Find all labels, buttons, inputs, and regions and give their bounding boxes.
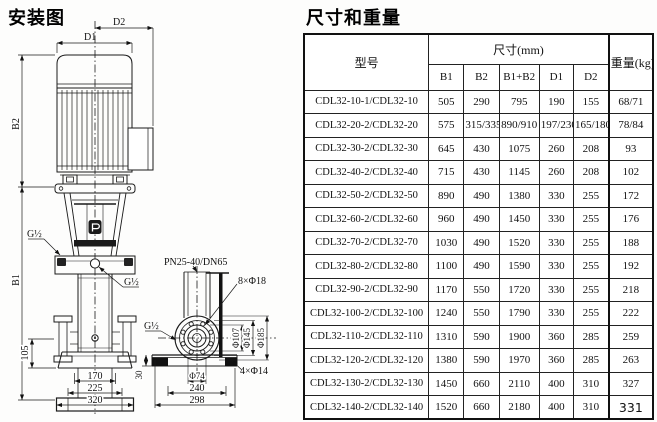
d2-cell: 310 — [573, 372, 608, 396]
col-header-b2: B2 — [464, 64, 499, 90]
wt-cell: 93 — [609, 137, 653, 161]
d2-cell: 255 — [573, 208, 608, 232]
d1-cell: 330 — [539, 255, 573, 279]
dim-320-label: 320 — [88, 395, 103, 406]
dim-d1-label: D1 — [84, 32, 96, 43]
model-cell: CDL32-80-2/CDL32-80 — [304, 255, 429, 279]
d2-cell: 208 — [573, 161, 608, 185]
col-header-model: 型号 — [304, 34, 429, 90]
wt-cell: 102 — [609, 161, 653, 185]
b1b2-cell: 1590 — [499, 255, 539, 279]
dim-170-label: 170 — [88, 371, 103, 382]
d2-cell: 255 — [573, 255, 608, 279]
d2-cell: 165/180 — [573, 114, 608, 138]
front-view-dimensions — [18, 28, 153, 405]
d1-cell: 330 — [539, 302, 573, 326]
model-cell: CDL32-10-1/CDL32-10 — [304, 90, 429, 114]
b1b2-cell: 795 — [499, 90, 539, 114]
catalog-page: 安装图 尺寸和重量 — [0, 0, 657, 422]
table-row: CDL32-110-2/CDL32-1101310590190036028525… — [304, 325, 653, 349]
table-row: CDL32-40-2/CDL32-407154301145260208102 — [304, 161, 653, 185]
pump-front-view — [54, 21, 153, 414]
d1-cell: 330 — [539, 278, 573, 302]
d2-cell: 255 — [573, 302, 608, 326]
dia-185-label: Φ185 — [256, 327, 266, 348]
flange-spec-label: PN25-40/DN65 — [164, 257, 227, 268]
d1-cell: 330 — [539, 208, 573, 232]
table-row: CDL32-130-2/CDL32-1301450660211040031032… — [304, 372, 653, 396]
dim-b1-label: B1 — [11, 274, 22, 286]
b1b2-cell: 1450 — [499, 208, 539, 232]
port-g12-center-label: G½ — [124, 277, 139, 288]
model-cell: CDL32-120-2/CDL32-120 — [304, 349, 429, 373]
model-cell: CDL32-40-2/CDL32-40 — [304, 161, 429, 185]
table-row: CDL32-10-1/CDL32-1050529079519015568/71 — [304, 90, 653, 114]
model-cell: CDL32-90-2/CDL32-90 — [304, 278, 429, 302]
col-header-size-mm: 尺寸(mm) — [429, 34, 609, 64]
pump-installation-drawing: D2 D1 B2 B1 G½ G½ G½ 105 170 225 320 PN2… — [0, 0, 310, 422]
dimensions-weight-table: 型号 尺寸(mm) 重量(kg) B1 B2 B1+B2 D1 D2 CDL32… — [303, 33, 654, 420]
table-row: CDL32-60-2/CDL32-609604901450330255176 — [304, 208, 653, 232]
model-cell: CDL32-130-2/CDL32-130 — [304, 372, 429, 396]
col-header-weight-kg: 重量(kg) — [609, 34, 653, 90]
b2-cell: 290 — [464, 90, 499, 114]
b1-cell: 1100 — [429, 255, 464, 279]
dim-d2-label: D2 — [113, 17, 125, 28]
b1b2-cell: 1720 — [499, 278, 539, 302]
b1-cell: 1170 — [429, 278, 464, 302]
bolt-holes-4-label: 4×Φ14 — [240, 366, 268, 377]
port-g12-side-label: G½ — [144, 321, 159, 332]
d2-cell: 285 — [573, 349, 608, 373]
d2-cell: 255 — [573, 184, 608, 208]
b1-cell: 890 — [429, 184, 464, 208]
dia-107-label: Φ107 — [231, 327, 241, 348]
d1-cell: 400 — [539, 372, 573, 396]
wt-cell: 172 — [609, 184, 653, 208]
b2-cell: 550 — [464, 302, 499, 326]
b1b2-cell: 890/910 — [499, 114, 539, 138]
table-row: CDL32-20-2/CDL32-20575315/335890/910197/… — [304, 114, 653, 138]
dim-105-label: 105 — [20, 346, 31, 361]
d1-cell: 190 — [539, 90, 573, 114]
d1-cell: 260 — [539, 161, 573, 185]
col-header-b1b2: B1+B2 — [499, 64, 539, 90]
col-header-d1: D1 — [539, 64, 573, 90]
dim-298-label: 298 — [190, 395, 205, 406]
model-cell: CDL32-100-2/CDL32-100 — [304, 302, 429, 326]
b1b2-cell: 1900 — [499, 325, 539, 349]
wt-cell: 78/84 — [609, 114, 653, 138]
d2-cell: 285 — [573, 325, 608, 349]
col-header-d2: D2 — [573, 64, 608, 90]
drawing-labels: D2 D1 B2 B1 G½ G½ G½ 105 170 225 320 PN2… — [11, 17, 268, 406]
wt-cell: 188 — [609, 231, 653, 255]
b1b2-cell: 1970 — [499, 349, 539, 373]
table-row: CDL32-80-2/CDL32-8011004901590330255192 — [304, 255, 653, 279]
d1-cell: 330 — [539, 184, 573, 208]
b2-cell: 660 — [464, 396, 499, 420]
wt-cell: 218 — [609, 278, 653, 302]
d2-cell: 155 — [573, 90, 608, 114]
dia-74-label: Φ74 — [189, 371, 205, 381]
d1-cell: 360 — [539, 325, 573, 349]
dim-b2-label: B2 — [11, 118, 22, 130]
b1b2-cell: 1380 — [499, 184, 539, 208]
wt-cell: 259 — [609, 325, 653, 349]
b1b2-cell: 1520 — [499, 231, 539, 255]
b1-cell: 1380 — [429, 349, 464, 373]
b1-cell: 1240 — [429, 302, 464, 326]
b1b2-cell: 2180 — [499, 396, 539, 420]
wt-cell: 263 — [609, 349, 653, 373]
bolt-circle-8-label: 8×Φ18 — [238, 276, 266, 287]
b2-cell: 590 — [464, 349, 499, 373]
table-row: CDL32-120-2/CDL32-1201380590197036028526… — [304, 349, 653, 373]
d2-cell: 208 — [573, 137, 608, 161]
b2-cell: 590 — [464, 325, 499, 349]
d1-cell: 360 — [539, 349, 573, 373]
b2-cell: 315/335 — [464, 114, 499, 138]
dim-225-label: 225 — [88, 383, 103, 394]
d2-cell: 310 — [573, 396, 608, 420]
wt-cell: 222 — [609, 302, 653, 326]
dimensions-weight-title: 尺寸和重量 — [306, 4, 401, 30]
b1-cell: 645 — [429, 137, 464, 161]
b2-cell: 490 — [464, 255, 499, 279]
b1-cell: 1030 — [429, 231, 464, 255]
model-cell: CDL32-20-2/CDL32-20 — [304, 114, 429, 138]
wt-cell: 331 — [609, 396, 653, 420]
table-row: CDL32-30-2/CDL32-30645430107526020893 — [304, 137, 653, 161]
brand-mark — [89, 220, 102, 234]
d1-cell: 260 — [539, 137, 573, 161]
wt-cell: 68/71 — [609, 90, 653, 114]
wt-cell: 176 — [609, 208, 653, 232]
b1b2-cell: 1075 — [499, 137, 539, 161]
table-row: CDL32-90-2/CDL32-9011705501720330255218 — [304, 278, 653, 302]
b2-cell: 490 — [464, 208, 499, 232]
dia-145-label: Φ145 — [242, 327, 252, 348]
d1-cell: 197/230 — [539, 114, 573, 138]
d2-cell: 255 — [573, 231, 608, 255]
wt-cell: 327 — [609, 372, 653, 396]
d1-cell: 400 — [539, 396, 573, 420]
wt-cell: 192 — [609, 255, 653, 279]
b1-cell: 1310 — [429, 325, 464, 349]
col-header-b1: B1 — [429, 64, 464, 90]
b1-cell: 960 — [429, 208, 464, 232]
table-row: CDL32-50-2/CDL32-508904901380330255172 — [304, 184, 653, 208]
port-g12-fill-label: G½ — [27, 229, 42, 240]
b1-cell: 1450 — [429, 372, 464, 396]
b2-cell: 490 — [464, 184, 499, 208]
d1-cell: 330 — [539, 231, 573, 255]
d2-cell: 255 — [573, 278, 608, 302]
b1-cell: 715 — [429, 161, 464, 185]
model-cell: CDL32-50-2/CDL32-50 — [304, 184, 429, 208]
b2-cell: 430 — [464, 137, 499, 161]
b1-cell: 575 — [429, 114, 464, 138]
model-cell: CDL32-70-2/CDL32-70 — [304, 231, 429, 255]
model-cell: CDL32-60-2/CDL32-60 — [304, 208, 429, 232]
table-row: CDL32-140-2/CDL32-1401520660218040031033… — [304, 396, 653, 420]
b1b2-cell: 1145 — [499, 161, 539, 185]
model-cell: CDL32-110-2/CDL32-110 — [304, 325, 429, 349]
b2-cell: 490 — [464, 231, 499, 255]
b1b2-cell: 2110 — [499, 372, 539, 396]
b1-cell: 1520 — [429, 396, 464, 420]
table-row: CDL32-100-2/CDL32-1001240550179033025522… — [304, 302, 653, 326]
model-cell: CDL32-140-2/CDL32-140 — [304, 396, 429, 420]
b1b2-cell: 1790 — [499, 302, 539, 326]
table-row: CDL32-70-2/CDL32-7010304901520330255188 — [304, 231, 653, 255]
dim-240-label: 240 — [190, 383, 205, 394]
b2-cell: 660 — [464, 372, 499, 396]
b2-cell: 430 — [464, 161, 499, 185]
b2-cell: 550 — [464, 278, 499, 302]
b1-cell: 505 — [429, 90, 464, 114]
model-cell: CDL32-30-2/CDL32-30 — [304, 137, 429, 161]
dim-30-label: 30 — [134, 370, 144, 380]
